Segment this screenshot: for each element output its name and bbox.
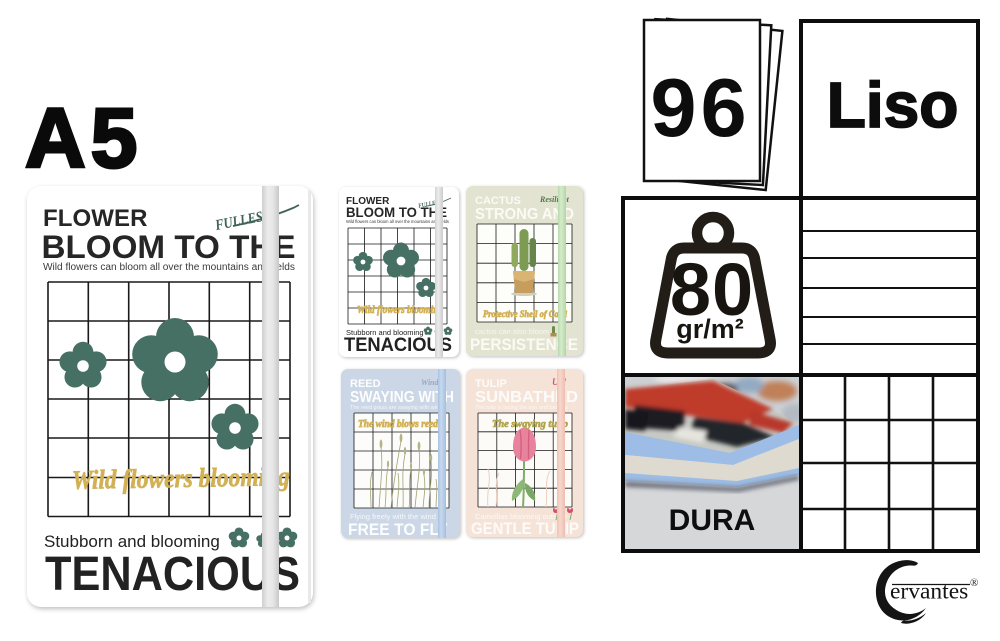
svg-text:The wind blows reed: The wind blows reed bbox=[358, 419, 439, 430]
svg-text:Protective Shell of Cacti: Protective Shell of Cacti bbox=[483, 309, 567, 319]
svg-text:gr/m²: gr/m² bbox=[676, 314, 744, 344]
svg-text:BLOOM TO THE: BLOOM TO THE bbox=[42, 229, 296, 265]
svg-text:Flying freely with the wind: Flying freely with the wind bbox=[350, 512, 436, 521]
svg-text:96: 96 bbox=[650, 61, 750, 154]
svg-text:Wild flowers blooming: Wild flowers blooming bbox=[357, 304, 443, 316]
svg-text:FREE TO FLY: FREE TO FLY bbox=[348, 521, 448, 538]
svg-text:ervantes: ervantes bbox=[890, 579, 968, 605]
svg-text:Wild flowers blooming: Wild flowers blooming bbox=[72, 461, 290, 495]
svg-text:The tulip is facing the sun an: The tulip is facing the sun and bathing bbox=[475, 405, 568, 411]
svg-text:®: ® bbox=[970, 577, 978, 589]
svg-text:FLOWER: FLOWER bbox=[43, 205, 148, 232]
svg-text:Wild flowers can bloom all ove: Wild flowers can bloom all over the moun… bbox=[346, 219, 449, 224]
svg-text:Wind: Wind bbox=[421, 378, 439, 387]
svg-text:The reed grass are swaying wit: The reed grass are swaying with wind bbox=[350, 405, 442, 411]
svg-text:cactus can also bloom: cactus can also bloom bbox=[475, 327, 549, 336]
svg-text:Wild flowers can bloom all ove: Wild flowers can bloom all over the moun… bbox=[43, 262, 295, 273]
svg-text:DURA: DURA bbox=[669, 504, 756, 537]
